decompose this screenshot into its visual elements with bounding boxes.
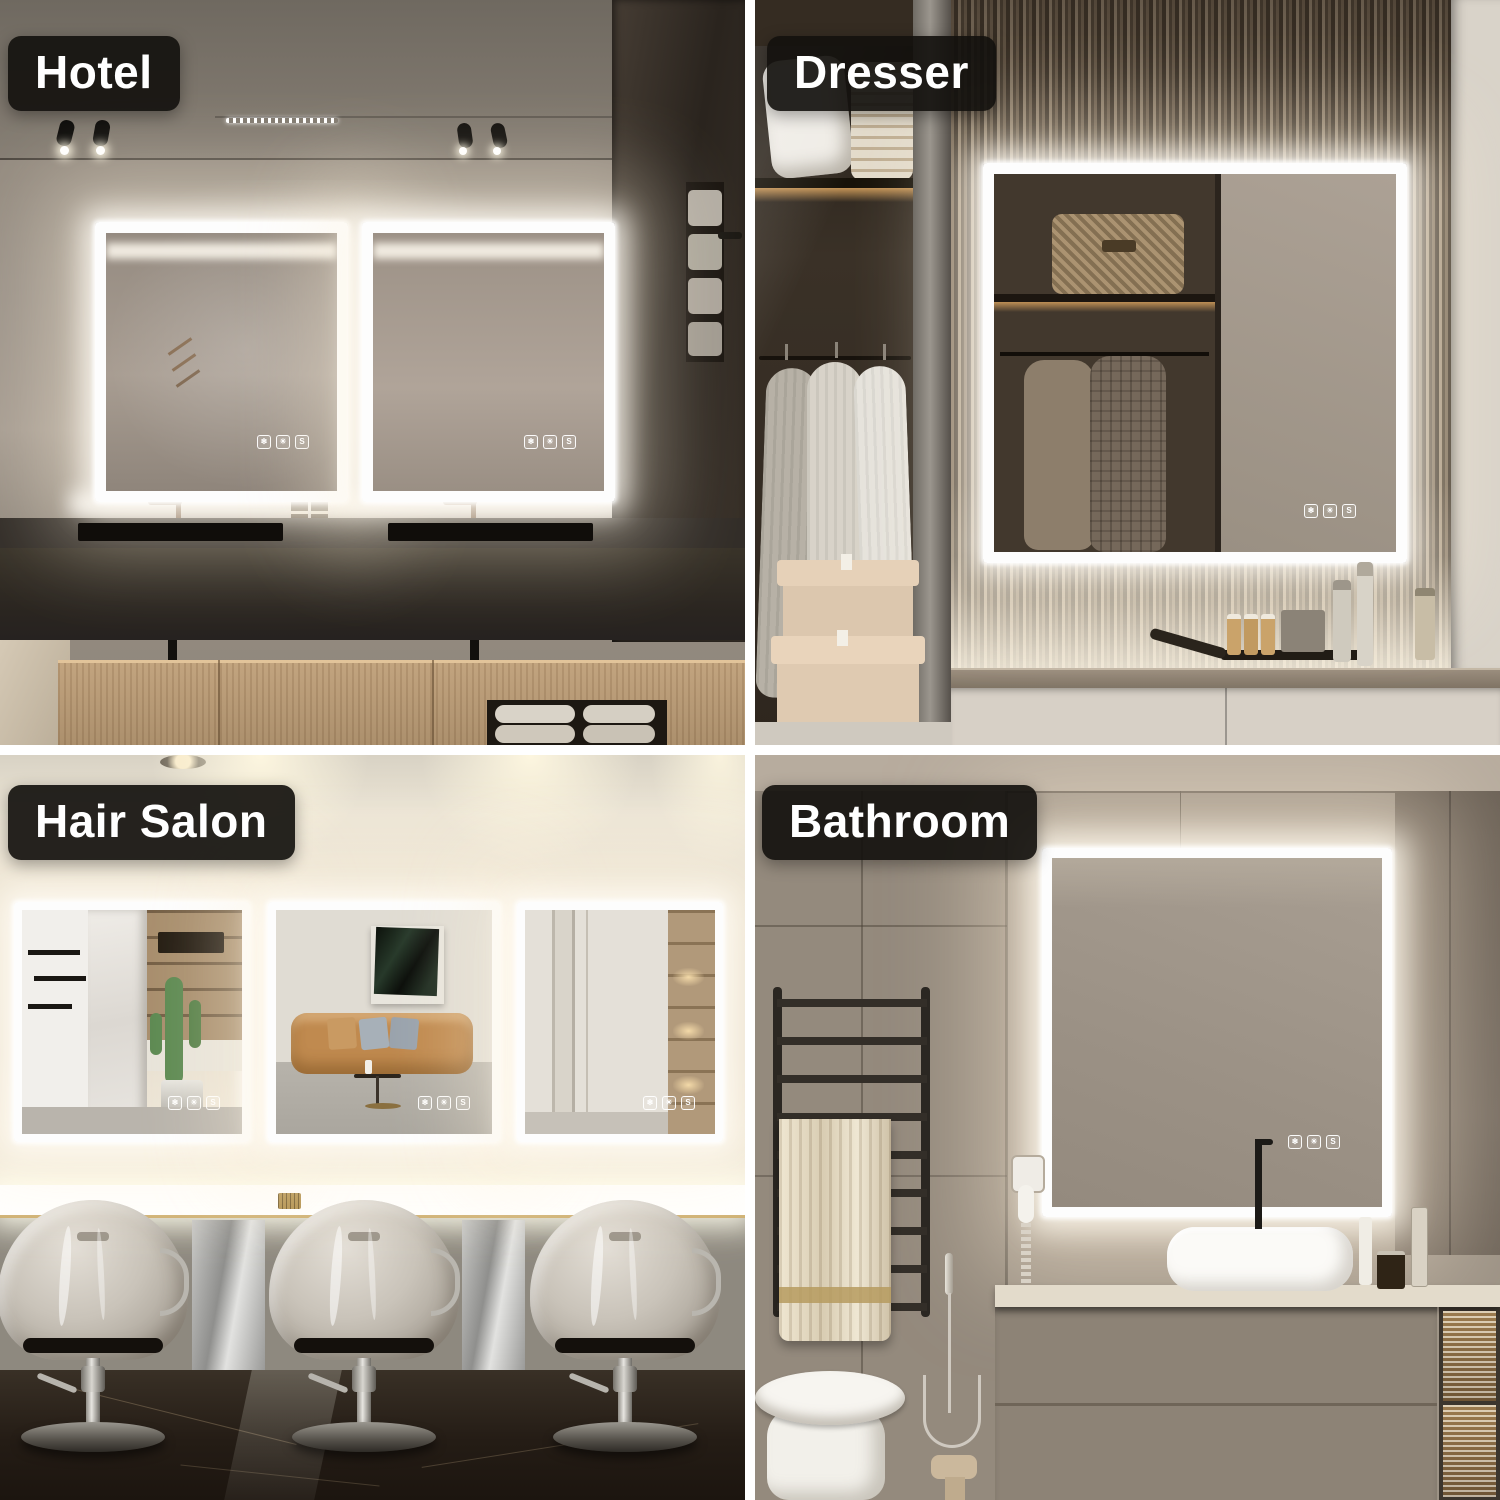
- lit-niche-glow: [673, 968, 703, 986]
- gift-box: [777, 664, 919, 722]
- mirror-touch-controls: ❄ ☀ S: [1288, 1135, 1340, 1149]
- sofa-cushion: [327, 1017, 357, 1050]
- rolled-towel: [583, 705, 655, 723]
- scene-hotel: ❄ ☀ S ❄ ☀ S: [0, 0, 745, 745]
- table-bottle: [365, 1060, 372, 1074]
- reflected-shelf: [34, 976, 86, 981]
- chair-seat-gap: [555, 1338, 695, 1353]
- faucet-spout: [1255, 1139, 1273, 1145]
- chair-base: [553, 1422, 697, 1452]
- drawer-seam: [432, 660, 434, 745]
- reflected-shelf: [28, 1004, 72, 1009]
- reflected-jacket: [1090, 356, 1166, 552]
- toilet-lid: [755, 1371, 905, 1425]
- toilet-brush-stem: [945, 1477, 965, 1500]
- memory-icon: S: [206, 1096, 220, 1110]
- rolled-towel: [495, 725, 575, 743]
- scene-label-hotel: Hotel: [8, 36, 180, 111]
- defogger-icon: ❄: [524, 435, 538, 449]
- brightness-icon: ☀: [662, 1096, 676, 1110]
- product-collage: ❄ ☀ S ❄ ☀ S: [0, 0, 1500, 1500]
- fluted-glass-panel: [1443, 1405, 1496, 1497]
- spotlight-glow: [493, 147, 501, 155]
- coffee-table-base: [365, 1103, 401, 1109]
- faucet: [1255, 1139, 1262, 1229]
- scene-hair-salon: ❄ ☀ S ❄ ☀ S: [0, 755, 745, 1500]
- mirror-touch-controls: ❄ ☀ S: [524, 435, 576, 449]
- spotlight-glow: [459, 147, 467, 155]
- reflected-floor: [525, 1112, 668, 1134]
- spotlight-glow: [96, 146, 105, 155]
- lotion-bottle: [1359, 1217, 1372, 1285]
- mirror-touch-controls: ❄ ☀ S: [168, 1096, 220, 1110]
- brightness-icon: ☀: [543, 435, 557, 449]
- vessel-sink: [1167, 1227, 1353, 1291]
- salon-chair: [530, 1200, 720, 1500]
- sink-basin: [388, 523, 593, 541]
- shelf-bottles: [158, 932, 224, 952]
- mirror-touch-controls: ❄ ☀ S: [1304, 504, 1356, 518]
- chair-handle: [77, 1232, 109, 1241]
- door-handle: [718, 232, 742, 239]
- chair-base: [21, 1422, 165, 1452]
- wall-wash-glow: [650, 755, 745, 865]
- gift-box-lid: [771, 636, 925, 664]
- box-ribbon-tab: [837, 630, 848, 646]
- mirror-touch-controls: ❄ ☀ S: [418, 1096, 470, 1110]
- chair-foot-lever: [307, 1372, 348, 1393]
- reflected-floor: [22, 1107, 242, 1134]
- reflected-jacket: [1024, 360, 1094, 550]
- door-frame: [586, 910, 588, 1134]
- memory-icon: S: [1326, 1135, 1340, 1149]
- cosmetic-bottle: [1244, 614, 1258, 655]
- chair-handle: [609, 1232, 641, 1241]
- sofa-cushion: [359, 1016, 390, 1050]
- toilet-brush-holder: [931, 1455, 977, 1479]
- cosmetic-bottle: [1227, 614, 1241, 655]
- brightness-icon: ☀: [276, 435, 290, 449]
- mirror-hanging-cord: [1180, 791, 1181, 851]
- reflected-ceiling: [1052, 858, 1382, 907]
- door-frame: [552, 910, 575, 1134]
- memory-icon: S: [1342, 504, 1356, 518]
- spotlight-glow: [60, 146, 69, 155]
- drawer-seam: [218, 660, 220, 745]
- brightness-icon: ☀: [1323, 504, 1337, 518]
- brightness-icon: ☀: [1307, 1135, 1321, 1149]
- rolled-towel: [583, 725, 655, 743]
- scene-dresser: ❄ ☀ S Dresser: [755, 0, 1500, 745]
- hanging-towel: [779, 1119, 891, 1341]
- chair-foot-lever: [36, 1372, 77, 1393]
- vanity-apron: [0, 548, 745, 640]
- glass-door-frame: [913, 0, 951, 745]
- led-mirror: ❄ ☀ S: [362, 222, 615, 502]
- wall-art-paint: [374, 927, 439, 996]
- lit-niche-glow: [673, 1076, 703, 1094]
- perfume-bottle: [1415, 588, 1435, 660]
- defogger-icon: ❄: [1288, 1135, 1302, 1149]
- lower-cabinet: [755, 722, 951, 745]
- gift-box: [783, 586, 913, 636]
- spray-bottle: [1333, 580, 1351, 662]
- tile-seam: [755, 925, 1007, 927]
- chair-hydraulic: [81, 1366, 105, 1392]
- cosmetic-box: [1281, 610, 1325, 652]
- cactus-arm: [150, 1013, 162, 1055]
- box-ribbon-tab: [841, 554, 852, 570]
- fluted-glass-panel: [1443, 1311, 1496, 1401]
- led-mirror: ❄ ☀ S: [14, 902, 250, 1142]
- led-mirror: ❄ ☀ S: [517, 902, 723, 1142]
- rolled-towel: [495, 705, 575, 723]
- basket-handle: [1102, 240, 1136, 252]
- folded-towel: [688, 190, 722, 226]
- led-mirror: ❄ ☀ S: [268, 902, 500, 1142]
- chair-seat-gap: [23, 1338, 163, 1353]
- scene-label-dresser: Dresser: [767, 36, 996, 111]
- reflected-shelf-glow: [994, 302, 1215, 312]
- drawer-seam: [1225, 688, 1227, 745]
- tall-cabinet: [1395, 791, 1500, 1255]
- mirror-reflection: [373, 233, 604, 491]
- sink-basin: [78, 523, 283, 541]
- dresser-counter: [951, 668, 1500, 690]
- chrome-panel: [462, 1220, 525, 1370]
- defogger-icon: ❄: [1304, 504, 1318, 518]
- led-mirror: ❄ ☀ S: [983, 163, 1407, 563]
- spray-bottle: [1357, 562, 1373, 666]
- chrome-panel: [192, 1220, 265, 1370]
- cabinet-seam: [1449, 791, 1451, 1255]
- bidet-hose-loop: [923, 1375, 981, 1448]
- defogger-icon: ❄: [418, 1096, 432, 1110]
- memory-icon: S: [295, 435, 309, 449]
- reflected-shelf: [28, 950, 80, 955]
- reflected-light-band: [373, 243, 604, 259]
- vanity-drawer-seam: [995, 1403, 1437, 1406]
- salon-chair: [0, 1200, 188, 1500]
- led-mirror: ❄ ☀ S: [95, 222, 348, 502]
- folded-towel: [688, 322, 722, 356]
- cactus-arm: [189, 1000, 201, 1048]
- amber-jar: [1377, 1251, 1405, 1289]
- defogger-icon: ❄: [257, 435, 271, 449]
- mirror-haze: [106, 233, 337, 491]
- memory-icon: S: [681, 1096, 695, 1110]
- coffee-table-stem: [376, 1076, 379, 1104]
- reflected-shelf: [994, 294, 1215, 302]
- led-strip-light: [226, 118, 338, 123]
- cosmetic-bottle: [1261, 614, 1275, 655]
- chair-base: [292, 1422, 436, 1452]
- chair-hydraulic: [613, 1366, 637, 1392]
- defogger-icon: ❄: [643, 1096, 657, 1110]
- salon-chair: [269, 1200, 459, 1500]
- brightness-icon: ☀: [437, 1096, 451, 1110]
- memory-icon: S: [456, 1096, 470, 1110]
- reflected-wall: [22, 910, 97, 1134]
- mirror-touch-controls: ❄ ☀ S: [643, 1096, 695, 1110]
- chair-foot-lever: [568, 1372, 609, 1393]
- hair-dryer: [1018, 1185, 1034, 1223]
- brightness-icon: ☀: [187, 1096, 201, 1110]
- reflected-wall: [1221, 174, 1396, 552]
- bidet-sprayer-handle: [945, 1253, 953, 1295]
- folded-towel: [688, 278, 722, 314]
- lit-niche-glow: [673, 1022, 703, 1040]
- mirror-touch-controls: ❄ ☀ S: [257, 435, 309, 449]
- dryer-coiled-cord: [1021, 1223, 1031, 1285]
- marble-column: [88, 910, 147, 1134]
- folded-towel: [688, 234, 722, 270]
- wall-wash-glow: [420, 755, 640, 865]
- mirror-reflection: [1052, 858, 1382, 1207]
- sofa-cushion: [389, 1016, 420, 1050]
- reflected-rod: [1000, 352, 1209, 356]
- perfume-spray: [1411, 1207, 1428, 1287]
- chair-seat-gap: [294, 1338, 434, 1353]
- cactus-stem: [165, 977, 183, 1085]
- defogger-icon: ❄: [168, 1096, 182, 1110]
- chair-handle: [348, 1232, 380, 1241]
- side-wall: [1451, 0, 1500, 672]
- reflected-basket: [1052, 214, 1184, 294]
- chair-hydraulic: [352, 1366, 376, 1392]
- towel-gold-band: [779, 1287, 891, 1303]
- memory-icon: S: [562, 435, 576, 449]
- scene-label-hair-salon: Hair Salon: [8, 785, 295, 860]
- scene-label-bathroom: Bathroom: [762, 785, 1037, 860]
- led-mirror: ❄ ☀ S: [1042, 848, 1392, 1217]
- scene-bathroom: ❄ ☀ S: [755, 755, 1500, 1500]
